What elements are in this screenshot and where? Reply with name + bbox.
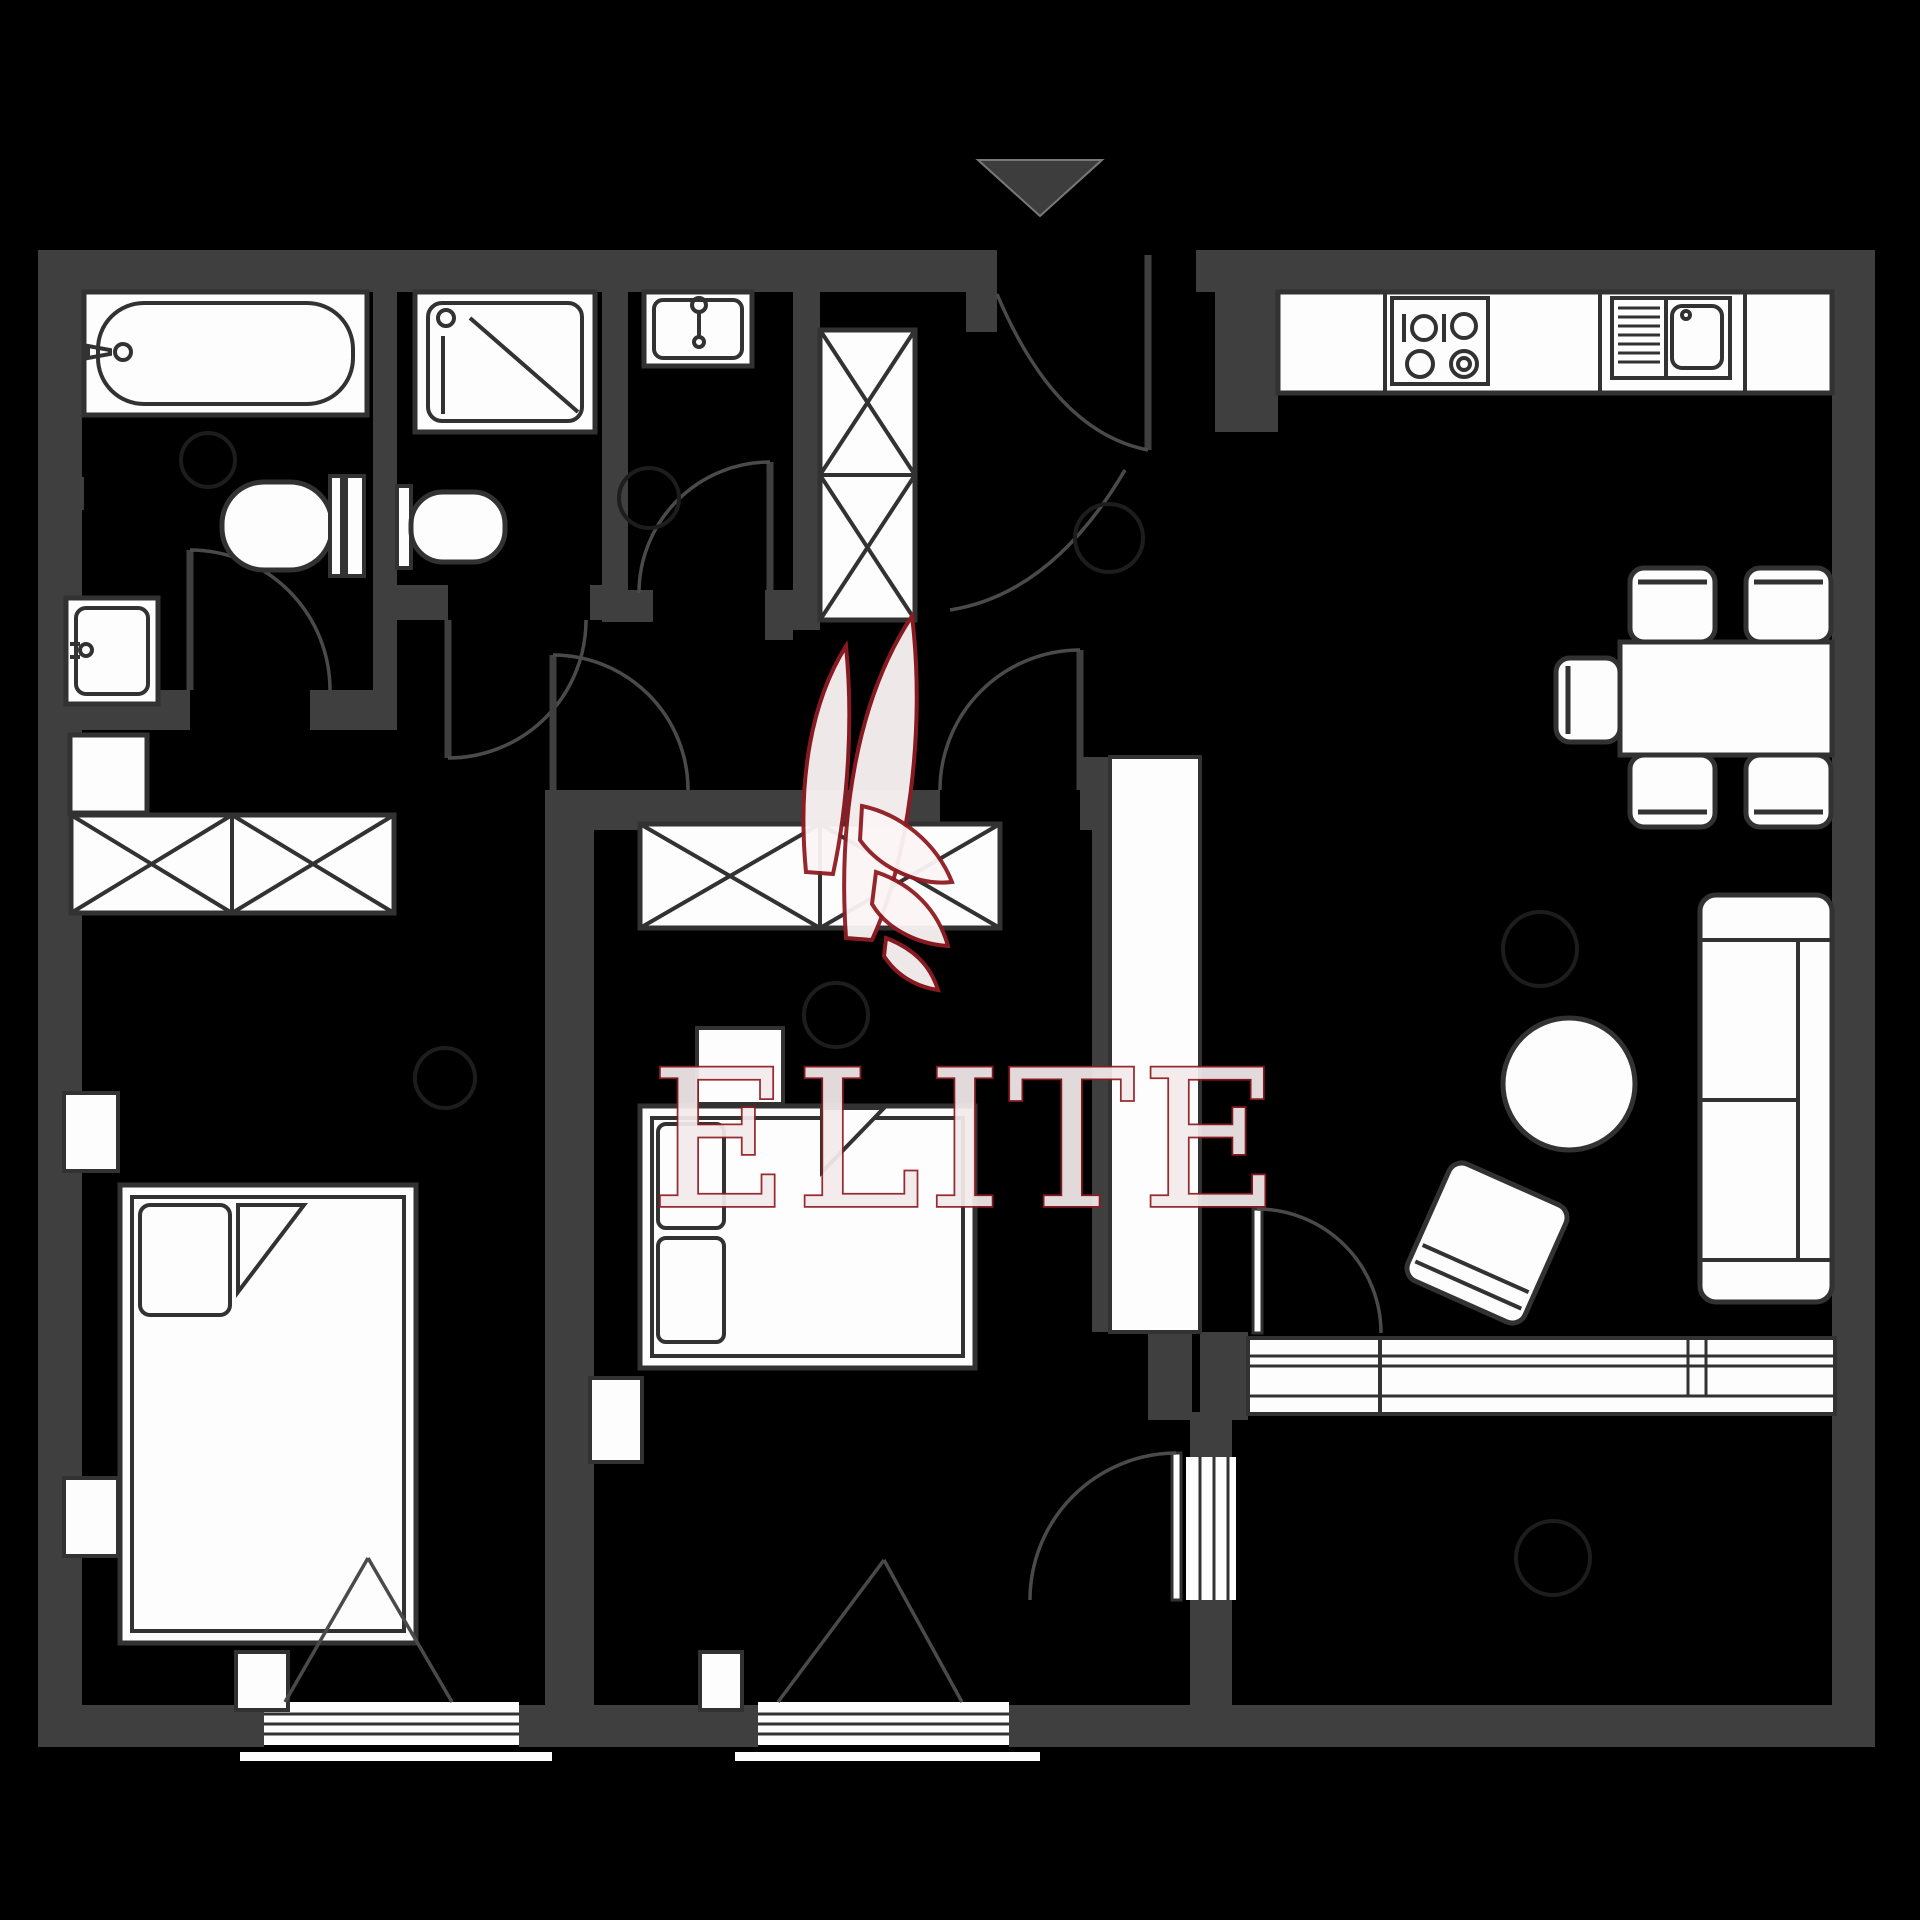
armchair xyxy=(1403,1159,1572,1328)
stove-icon xyxy=(1392,298,1488,384)
living-room-window-wall xyxy=(1248,1338,1835,1414)
entrance-door xyxy=(997,255,1148,450)
dining-table xyxy=(1620,642,1832,755)
shower-room-door xyxy=(448,620,586,758)
bathroom-sink xyxy=(66,598,158,704)
hall-wardrobe xyxy=(820,330,915,620)
floor-plan-canvas: ELITE xyxy=(0,0,1920,1920)
nightstand xyxy=(64,1093,118,1171)
sofa xyxy=(1700,895,1832,1302)
watermark-text: ELITE xyxy=(650,1030,1285,1251)
bedroom-2-balcony-door xyxy=(1030,1453,1236,1600)
shower-tray xyxy=(415,292,595,432)
bedroom-2-door xyxy=(940,650,1080,790)
round-table xyxy=(1503,1018,1635,1150)
cabinet xyxy=(70,735,147,813)
bed-1 xyxy=(120,1185,416,1643)
bathtub xyxy=(84,292,367,415)
nightstand xyxy=(64,1478,118,1556)
vestibule-door-arc xyxy=(950,470,1125,610)
nightstand xyxy=(590,1378,642,1462)
toilet xyxy=(222,476,364,576)
floor-plan: ELITE xyxy=(0,0,1920,1920)
toilet-2 xyxy=(397,486,505,568)
kitchen-sink-icon xyxy=(1612,298,1730,378)
wc-washbasin xyxy=(644,292,752,366)
entrance-arrow-icon xyxy=(978,160,1102,216)
kitchen-counter xyxy=(1278,292,1832,393)
bedroom-1-wardrobe xyxy=(71,815,394,913)
